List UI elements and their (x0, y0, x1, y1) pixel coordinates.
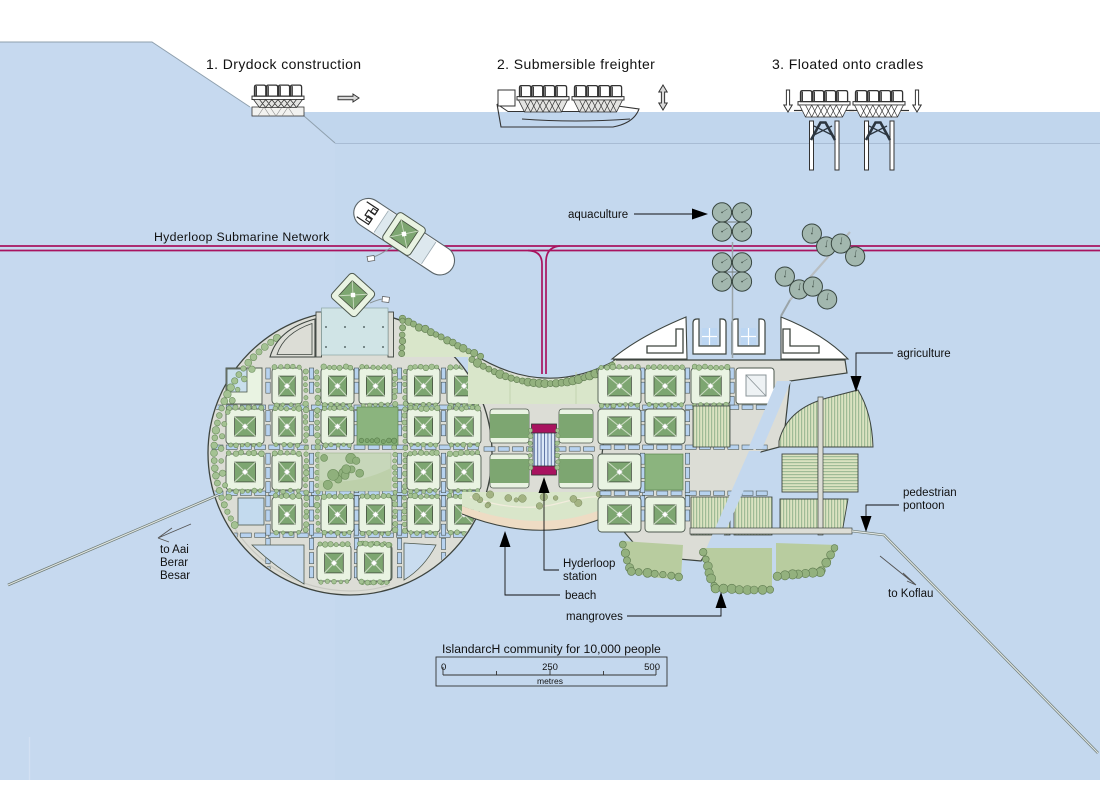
svg-text:Berar: Berar (160, 557, 188, 569)
svg-text:agriculture: agriculture (897, 348, 951, 360)
svg-text:Hyderloop: Hyderloop (563, 558, 615, 570)
svg-text:1. Drydock construction: 1. Drydock construction (206, 56, 361, 72)
svg-text:0: 0 (441, 662, 446, 673)
svg-text:3. Floated onto cradles: 3. Floated onto cradles (772, 56, 924, 72)
svg-text:beach: beach (565, 590, 596, 602)
svg-text:Besar: Besar (160, 570, 190, 582)
svg-text:500: 500 (644, 662, 660, 673)
svg-text:to Aai: to Aai (160, 544, 189, 556)
svg-text:IslandarcH community for 10,00: IslandarcH community for 10,000 people (442, 642, 661, 656)
svg-text:pedestrian: pedestrian (903, 487, 957, 499)
svg-text:mangroves: mangroves (566, 611, 623, 623)
svg-text:pontoon: pontoon (903, 500, 945, 512)
svg-text:Hyderloop Submarine Network: Hyderloop Submarine Network (154, 230, 330, 244)
svg-text:aquaculture: aquaculture (568, 209, 628, 221)
svg-text:metres: metres (537, 676, 563, 686)
svg-text:2. Submersible freighter: 2. Submersible freighter (497, 56, 655, 72)
svg-text:station: station (563, 571, 597, 583)
svg-text:to Koflau: to Koflau (888, 588, 933, 600)
